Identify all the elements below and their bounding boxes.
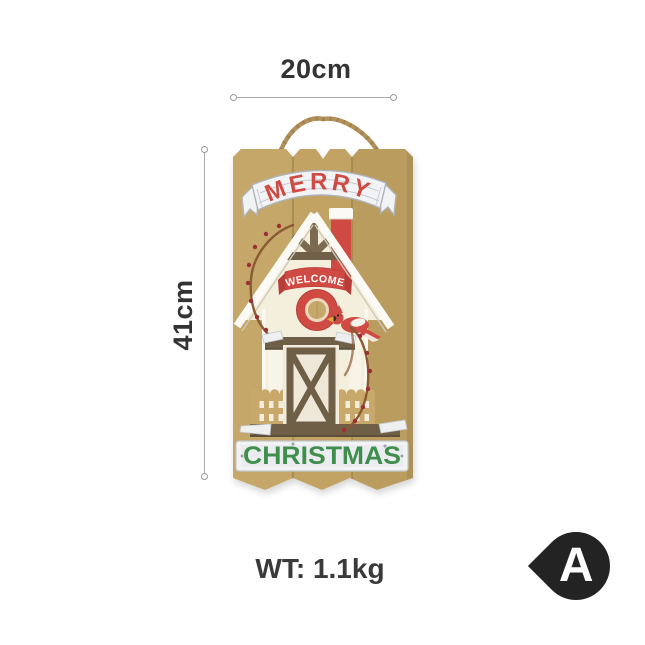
christmas-plaque: CHRISTMAS: [236, 441, 408, 471]
width-dimension-line: [237, 97, 390, 98]
variant-a-badge-letter: A: [559, 542, 594, 590]
height-line-top-endpoint: [201, 146, 208, 153]
width-line-left-endpoint: [230, 94, 237, 101]
rope-hanger: [281, 118, 377, 150]
height-line-bottom-endpoint: [201, 473, 208, 480]
christmas-sign-product: MERRY WELCOME: [233, 113, 413, 493]
variant-a-badge: A: [528, 518, 624, 614]
wreath-ring: [297, 290, 338, 331]
product-photo-canvas: 20cm 41cm: [0, 0, 645, 645]
height-dimension-label: 41cm: [168, 275, 196, 355]
christmas-plaque-text: CHRISTMAS: [243, 442, 401, 470]
weight-label: WT: 1.1kg: [235, 553, 405, 585]
height-dimension-line: [204, 152, 205, 474]
barn-door: [283, 345, 339, 431]
width-line-right-endpoint: [390, 94, 397, 101]
width-dimension-label: 20cm: [236, 54, 396, 85]
